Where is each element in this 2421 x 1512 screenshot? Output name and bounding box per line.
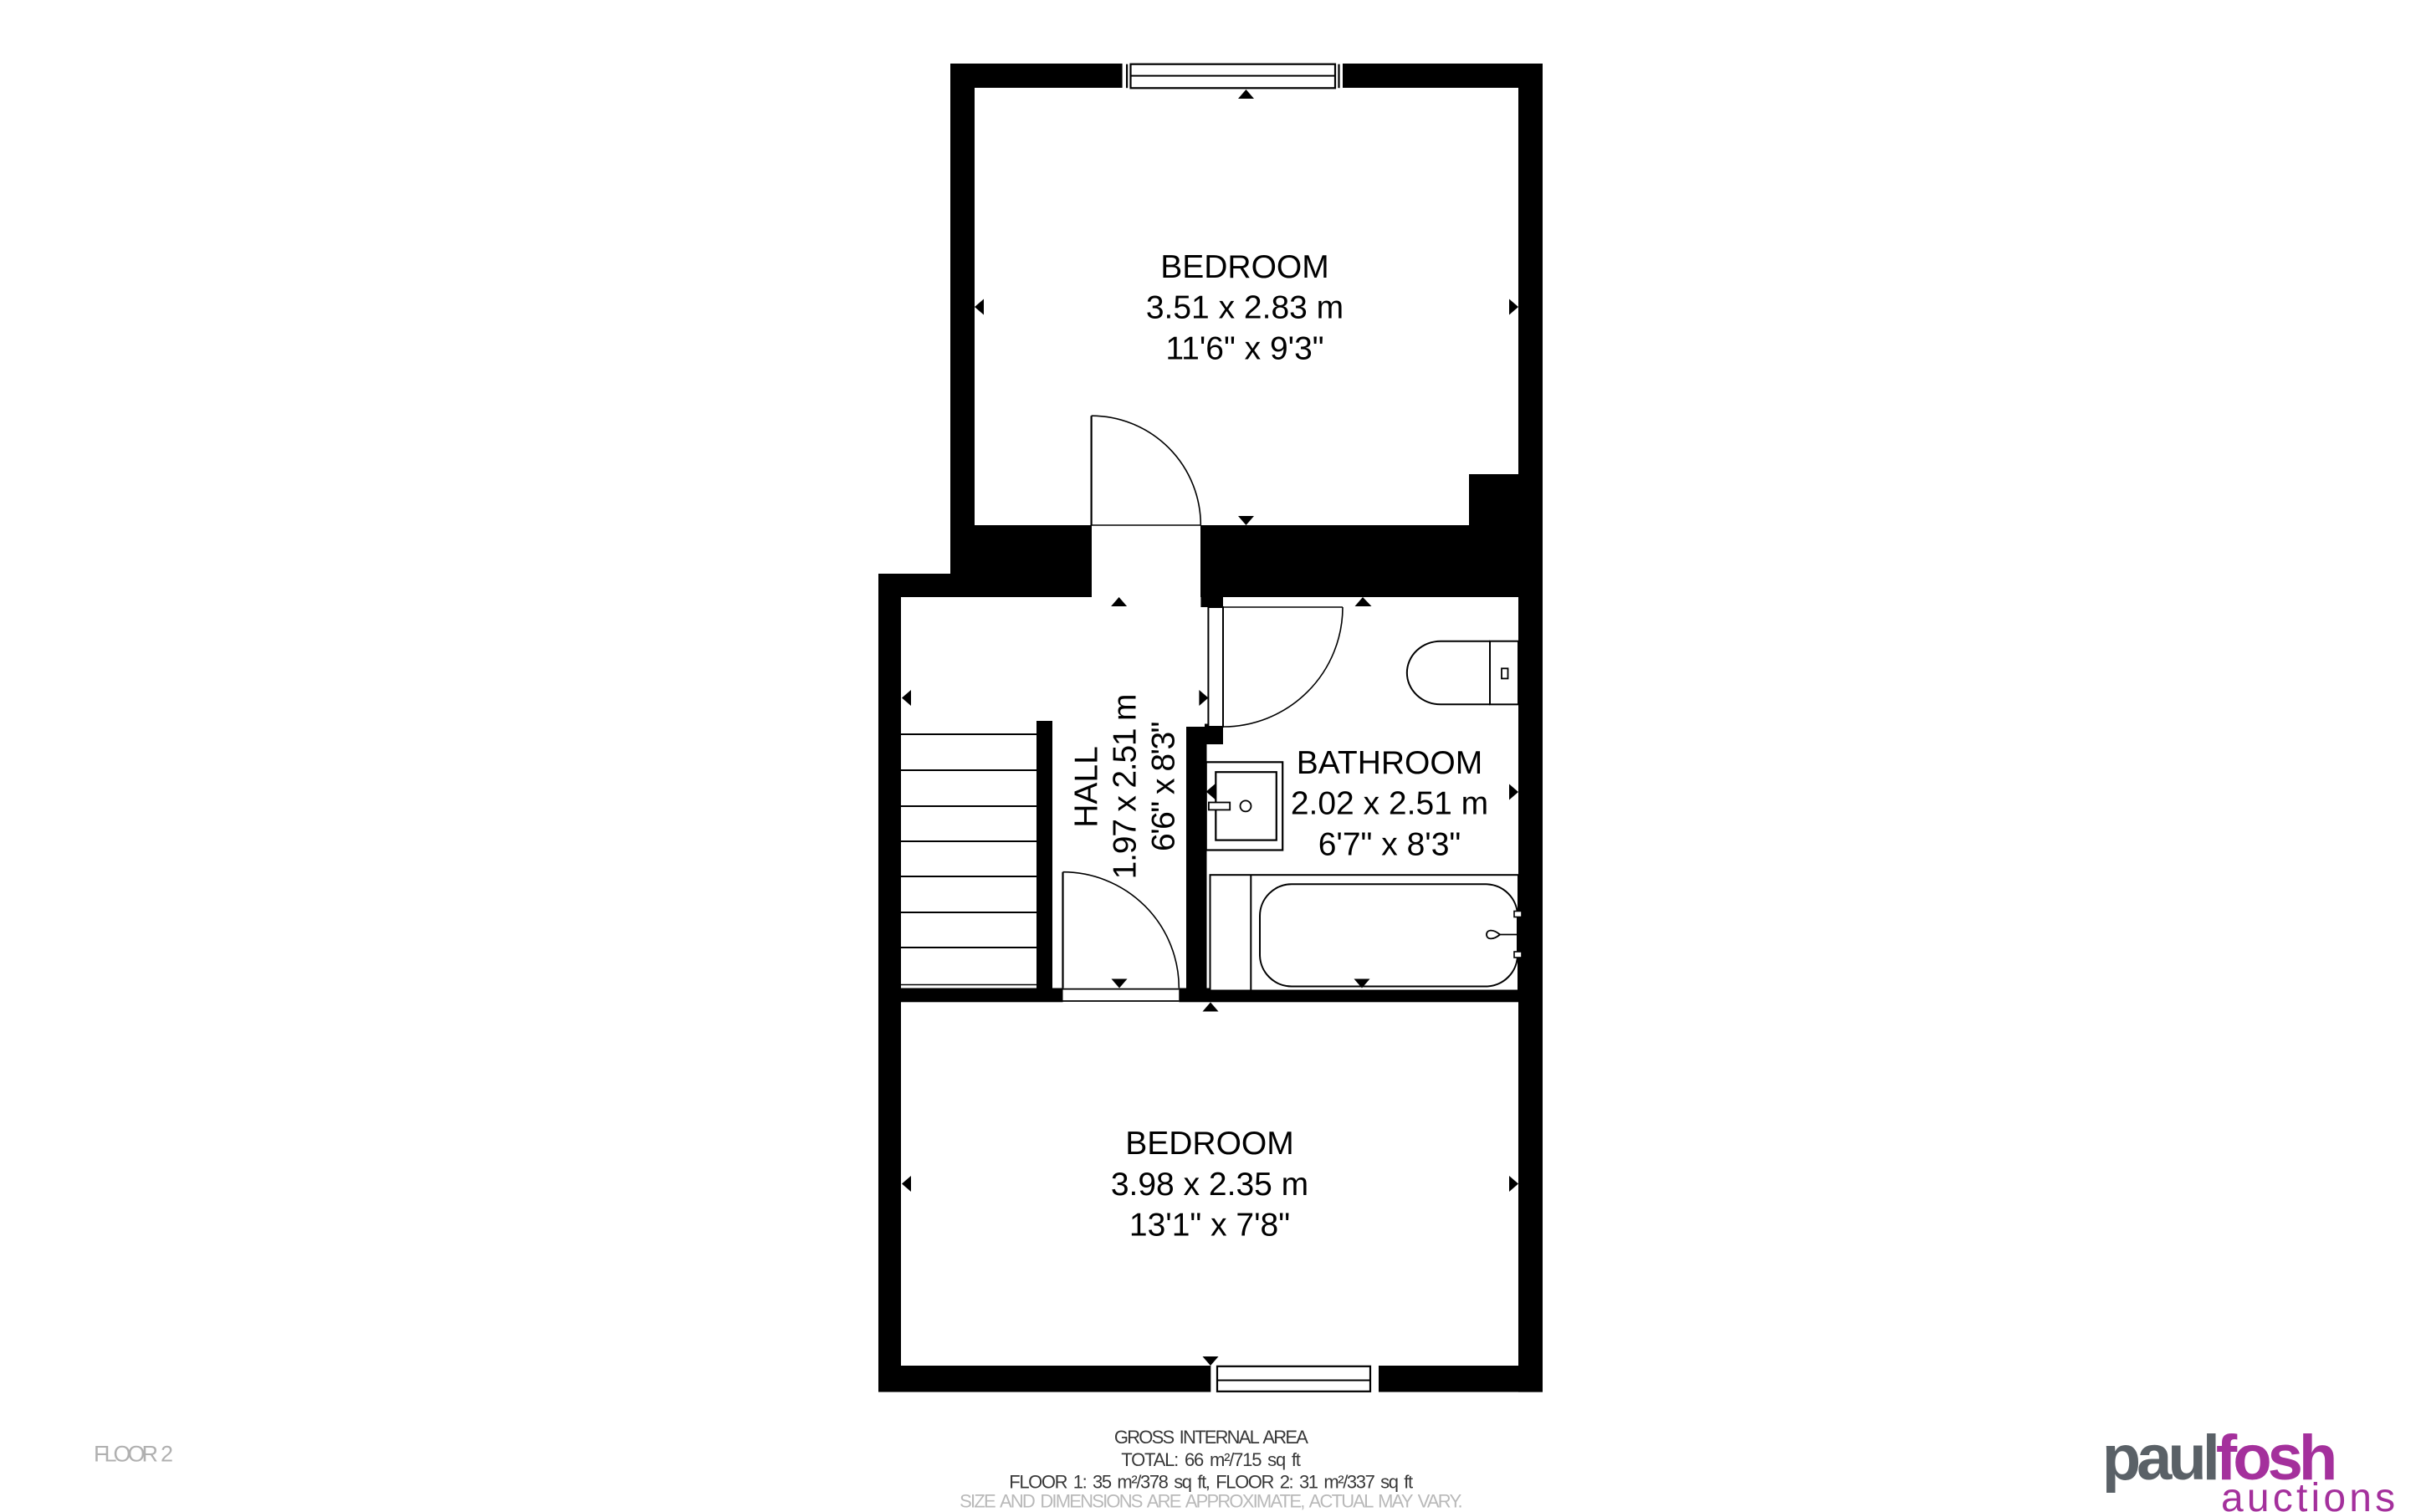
svg-text:6'6" x 8'3": 6'6" x 8'3" — [1146, 722, 1182, 851]
svg-text:BEDROOM: BEDROOM — [1160, 249, 1329, 285]
svg-text:6'7" x 8'3": 6'7" x 8'3" — [1318, 826, 1461, 862]
svg-text:11'6" x 9'3": 11'6" x 9'3" — [1165, 330, 1323, 366]
svg-text:BEDROOM: BEDROOM — [1125, 1126, 1294, 1162]
svg-text:BATHROOM: BATHROOM — [1297, 745, 1482, 781]
svg-text:HALL: HALL — [1069, 746, 1105, 828]
svg-text:FLOOR 2: FLOOR 2 — [94, 1441, 172, 1466]
svg-text:3.51 x 2.83 m: 3.51 x 2.83 m — [1146, 290, 1344, 326]
svg-text:13'1" x 7'8": 13'1" x 7'8" — [1129, 1208, 1290, 1244]
svg-text:2.02 x 2.51 m: 2.02 x 2.51 m — [1291, 786, 1488, 822]
svg-text:auctions: auctions — [2221, 1476, 2398, 1512]
svg-text:3.98 x 2.35 m: 3.98 x 2.35 m — [1111, 1167, 1308, 1203]
svg-text:TOTAL: 66 m²/715 sq ft: TOTAL: 66 m²/715 sq ft — [1121, 1449, 1301, 1470]
svg-text:GROSS INTERNAL AREA: GROSS INTERNAL AREA — [1114, 1427, 1308, 1448]
svg-text:SIZE AND DIMENSIONS ARE APPROX: SIZE AND DIMENSIONS ARE APPROXIMATE, ACT… — [960, 1491, 1461, 1512]
svg-text:FLOOR 1: 35 m²/378 sq ft, FLOO: FLOOR 1: 35 m²/378 sq ft, FLOOR 2: 31 m²… — [1009, 1472, 1413, 1493]
svg-text:1.97 x 2.51 m: 1.97 x 2.51 m — [1108, 695, 1144, 880]
